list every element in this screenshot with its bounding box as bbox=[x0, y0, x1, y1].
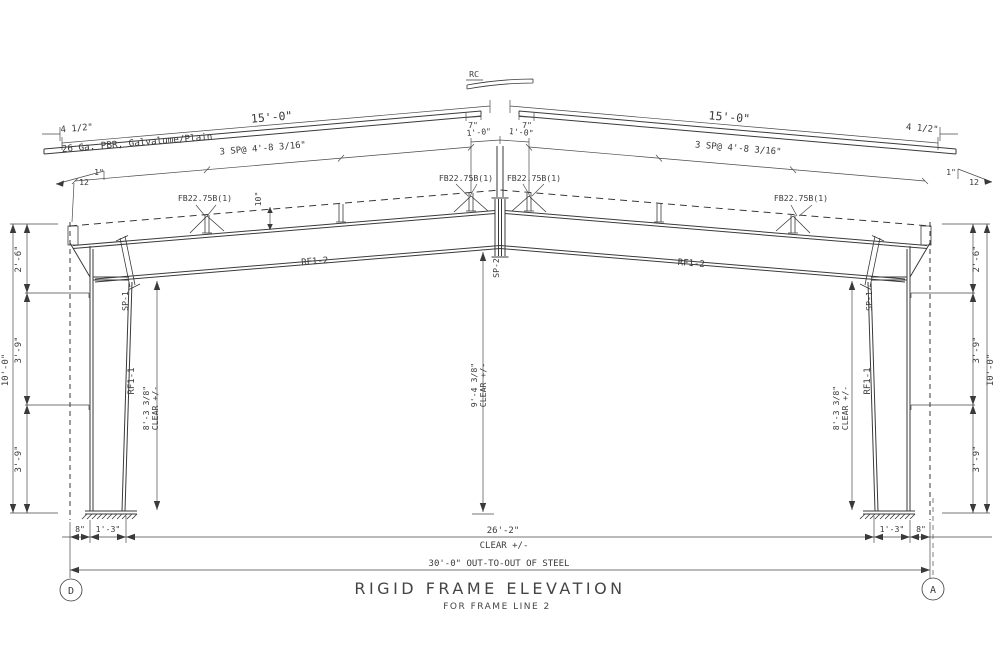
eave-lower-dim-right: 3'-9" bbox=[972, 445, 982, 472]
eave-mid-dim-right: 3'-9" bbox=[972, 336, 982, 363]
slope-rise-right: 1" bbox=[946, 167, 956, 177]
top-dimension-lines bbox=[42, 100, 958, 193]
ridge-cap-strip bbox=[466, 79, 533, 89]
column-mark-right: RF1-1 bbox=[863, 367, 873, 394]
clear-height-dimensions bbox=[157, 252, 852, 514]
eave-lower-dim-left: 3'-9" bbox=[14, 445, 24, 472]
fb-leader-lines bbox=[196, 184, 812, 216]
grid-bubble-right-label: A bbox=[930, 585, 936, 596]
flange-brace-label-1: FB22.75B(1) bbox=[178, 193, 232, 203]
drawing-sheet: RC 26 Ga. PBR, Galvalume/Plain 15'-0" 15… bbox=[0, 0, 1000, 668]
width-clear-suffix: CLEAR +/- bbox=[480, 541, 529, 551]
flange-brace-label-4: FB22.75B(1) bbox=[774, 193, 828, 203]
eave-height-dim-left: 10'-0" bbox=[1, 354, 11, 387]
flange-brace-label-3: FB22.75B(1) bbox=[507, 173, 561, 183]
ridge-purlin-dim-left: 1'-0" bbox=[466, 126, 491, 138]
eave-mid-dim-left: 3'-9" bbox=[14, 336, 24, 363]
flange-brace-diagonals bbox=[190, 196, 810, 233]
eave-strut-label-left: SP-1 bbox=[120, 291, 130, 311]
base-inner-dim-right: 1'-3" bbox=[880, 524, 905, 534]
base-plate-hatch-left bbox=[82, 514, 137, 519]
base-plate-hatch-right bbox=[860, 514, 915, 519]
panel-note: 26 Ga. PBR, Galvalume/Plain bbox=[61, 131, 213, 155]
grid-bubble-left-label: D bbox=[68, 586, 74, 597]
base-outer-dim-right: 8" bbox=[916, 524, 926, 534]
rafter-mark-right: RF1-2 bbox=[677, 258, 705, 270]
right-column bbox=[863, 243, 930, 514]
half-span-dim-left: 15'-0" bbox=[250, 108, 293, 125]
drawing-title: RIGID FRAME ELEVATION bbox=[354, 579, 625, 598]
eave-upper-dim-right: 2'-6" bbox=[972, 245, 982, 272]
rafter-mark-left: RF1-2 bbox=[301, 256, 329, 268]
ridge-strut-label: SP-2 bbox=[491, 258, 501, 278]
eave-clear-suffix-left: CLEAR +/- bbox=[150, 386, 160, 430]
column-mark-left: RF1-1 bbox=[127, 367, 137, 394]
panel-edge-dim-right: 4 1/2" bbox=[906, 123, 939, 136]
slope-run-right: 12 bbox=[969, 177, 979, 187]
center-clear-suffix: CLEAR +/- bbox=[478, 363, 488, 407]
eave-clear-suffix-right: CLEAR +/- bbox=[840, 386, 850, 430]
slope-rise-left: 1" bbox=[94, 167, 104, 177]
slope-run-left: 12 bbox=[79, 177, 89, 187]
ridge-purlin-dim-right: 1'-0" bbox=[509, 126, 534, 138]
base-outer-dim-left: 8" bbox=[75, 524, 85, 534]
eave-height-dim-right: 10'-0" bbox=[986, 354, 996, 387]
purlin-spacing-dim-left: 3 SP@ 4'-8 3/16" bbox=[219, 140, 306, 157]
purlin-spacing-dim-right: 3 SP@ 4'-8 3/16" bbox=[695, 140, 782, 157]
panel-edge-dim-left: 4 1/2" bbox=[60, 123, 93, 136]
drawing-subtitle: FOR FRAME LINE 2 bbox=[443, 602, 551, 612]
ridge-cap-label: RC bbox=[469, 69, 479, 79]
ridge-strut-member bbox=[492, 146, 509, 257]
flange-brace-label-2: FB22.75B(1) bbox=[439, 173, 493, 183]
eave-upper-dim-left: 2'-6" bbox=[14, 245, 24, 272]
width-clear-dim: 26'-2" bbox=[487, 526, 520, 536]
half-span-dim-right: 15'-0" bbox=[708, 108, 751, 125]
rigid-frame-elevation-drawing: RC 26 Ga. PBR, Galvalume/Plain 15'-0" 15… bbox=[0, 0, 1000, 668]
eave-strut-label-right: SP-1 bbox=[864, 291, 874, 311]
base-inner-dim-left: 1'-3" bbox=[96, 524, 121, 534]
overall-width-dim: 30'-0" OUT-TO-OUT OF STEEL bbox=[429, 559, 570, 569]
purlin-depth-dim: 10" bbox=[253, 192, 263, 207]
